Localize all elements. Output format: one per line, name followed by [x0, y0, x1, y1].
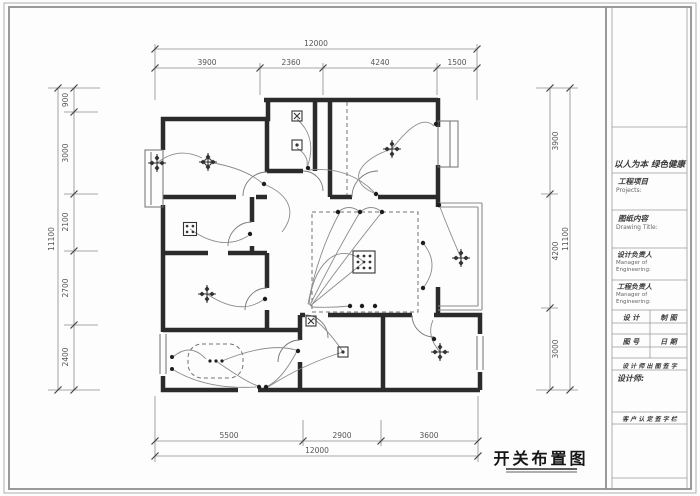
cad-canvas: 12000 3900 2360 4240 1500 5500 2900 3600… — [0, 0, 700, 496]
dimension-top: 12000 3900 2360 4240 1500 — [152, 39, 481, 100]
dimension-left: 11100 900 3000 2100 2700 2400 — [47, 85, 100, 394]
titleblock-content-label: 图纸内容 — [618, 213, 648, 224]
drawing-title-text: 开关布置图 — [493, 449, 588, 468]
dim-label: 11100 — [561, 227, 570, 251]
dim-label: 2100 — [61, 212, 70, 231]
titleblock-project-manager-label: 工程负责人 — [617, 282, 652, 292]
dim-label: 3900 — [551, 131, 560, 150]
titleblock-customer-row: 客 户 认 定 签 字 栏 — [612, 414, 687, 423]
dim-label: 4240 — [370, 58, 389, 67]
titleblock-project-manager-sub2: Engineering: — [616, 299, 651, 305]
dim-label: 2360 — [281, 58, 300, 67]
titleblock-cell-draft: 制 图 — [650, 313, 687, 323]
titleblock-seal-row: 设 计 师 出 图 签 字 — [612, 361, 687, 370]
titleblock-project-sub: Projects: — [616, 187, 642, 194]
titleblock-slogan: 以人为本 绿色健康 — [612, 158, 687, 170]
dim-label: 11100 — [47, 227, 56, 251]
titleblock-designer-label: 设计师: — [617, 373, 644, 384]
titleblock-cell-design: 设 计 — [612, 313, 650, 323]
dim-label: 4200 — [551, 241, 560, 260]
titleblock-project-manager-sub1: Manager of — [616, 292, 647, 298]
drawing-title: 开关布置图 — [493, 449, 588, 472]
ceiling-lamp-icon — [383, 140, 401, 158]
titleblock-cell-date: 日 期 — [650, 337, 687, 347]
dim-label: 12000 — [304, 39, 328, 48]
dimension-bottom: 5500 2900 3600 12000 — [152, 396, 482, 462]
dim-label: 2400 — [61, 347, 70, 366]
electrical-symbols — [148, 111, 470, 361]
dim-label: 1500 — [447, 58, 466, 67]
dim-label: 2900 — [332, 431, 351, 440]
switch-box-icon — [306, 316, 316, 326]
dim-label: 900 — [61, 93, 70, 108]
chandelier-icon — [353, 251, 375, 273]
drawing-sheet: 12000 3900 2360 4240 1500 5500 2900 3600… — [0, 0, 700, 496]
titleblock-design-manager-label: 设计负责人 — [617, 250, 652, 260]
dim-label: 3000 — [551, 339, 560, 358]
dim-label: 12000 — [305, 446, 329, 455]
dim-label: 3900 — [197, 58, 216, 67]
dimension-right: 3900 4200 3000 11100 — [536, 85, 578, 394]
dim-label: 2700 — [61, 278, 70, 297]
dim-label: 3600 — [419, 431, 438, 440]
ceiling-lamp-icon — [452, 249, 470, 267]
titleblock-project-label: 工程项目 — [618, 176, 648, 187]
titleblock-cell-sheet-no: 图 号 — [612, 337, 650, 347]
sheet-border — [4, 3, 696, 493]
switch-box-icon — [338, 347, 348, 357]
titleblock-design-manager-sub2: Engineering: — [616, 267, 651, 273]
dim-label: 3000 — [61, 143, 70, 162]
ceiling-lamp-icon — [198, 285, 216, 303]
ceiling-lamp-icon — [431, 343, 449, 361]
dim-label: 5500 — [219, 431, 238, 440]
titleblock-design-manager-sub1: Manager of — [616, 260, 647, 266]
floorplan-walls — [163, 98, 480, 390]
door-swings — [228, 171, 434, 362]
ceiling-lamp-icon — [199, 153, 217, 171]
titleblock-content-sub: Drawing Title: — [616, 224, 658, 231]
